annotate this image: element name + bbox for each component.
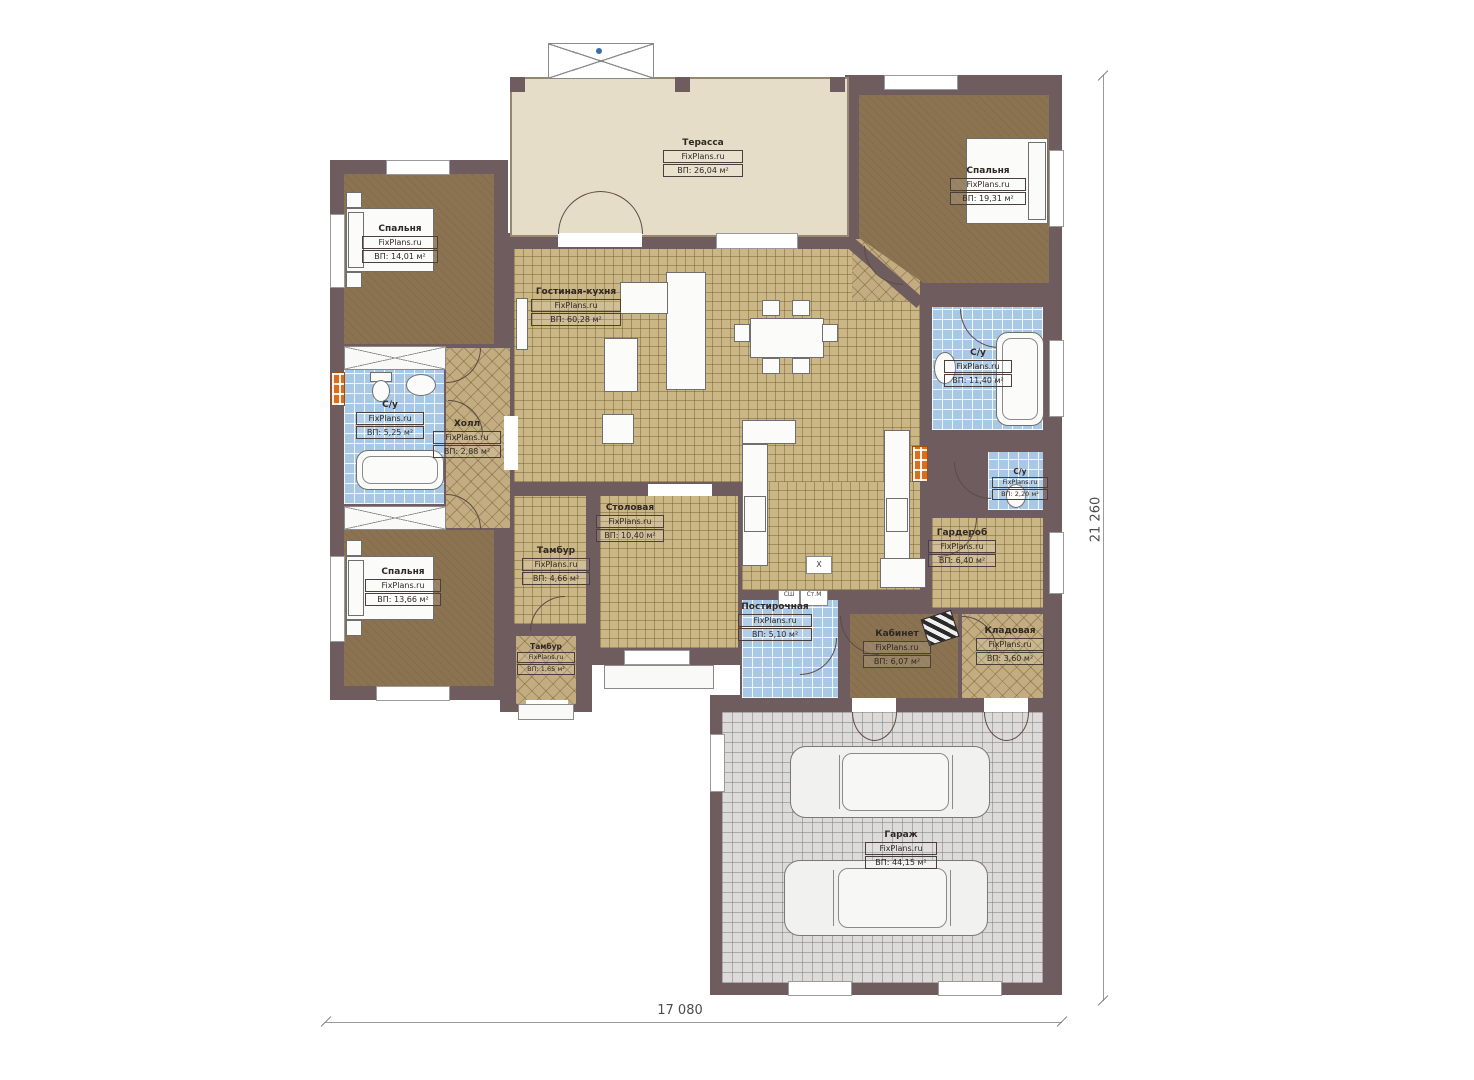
nightstand xyxy=(346,540,362,556)
car-windshield xyxy=(833,870,834,926)
coffee-table xyxy=(604,338,638,392)
sofa xyxy=(666,272,706,390)
dryer-label: СШ xyxy=(778,590,800,606)
window xyxy=(938,981,1002,996)
bed-pillow xyxy=(348,560,364,616)
north-marker-icon xyxy=(596,48,602,54)
terrace-column xyxy=(830,77,845,92)
porch-dining xyxy=(604,665,714,689)
terrace-door-opening xyxy=(558,233,642,247)
dining-floor xyxy=(600,496,738,648)
chair xyxy=(792,300,810,316)
terrace-column xyxy=(675,77,690,92)
chair xyxy=(734,324,750,342)
car xyxy=(790,746,990,818)
chair xyxy=(762,300,780,316)
tv-stand xyxy=(516,298,528,350)
tambur-small-floor xyxy=(516,636,576,704)
bathtub xyxy=(996,332,1044,426)
hall-living-opening xyxy=(504,416,518,470)
terrace-floor xyxy=(510,77,849,237)
floor-plan-canvas: СШ Ст.М X Терасса FixPlans.ru ВП: 26,04 … xyxy=(0,0,1474,1080)
window xyxy=(1049,340,1064,417)
closet-bottom xyxy=(344,506,446,530)
bed-pillow xyxy=(1028,142,1046,220)
car-windshield xyxy=(950,870,951,926)
bathtub-inner xyxy=(362,456,438,484)
window xyxy=(716,233,798,249)
car xyxy=(784,860,988,936)
window xyxy=(330,556,345,642)
bed-pillow xyxy=(348,212,364,268)
nightstand xyxy=(346,620,362,636)
bathtub xyxy=(356,450,444,490)
car-cabin xyxy=(838,868,947,929)
dimension-line-bottom xyxy=(325,1022,1062,1023)
chair xyxy=(762,358,780,374)
window xyxy=(884,75,958,90)
car-cabin xyxy=(842,753,949,810)
window xyxy=(788,981,852,996)
washer-label: Ст.М xyxy=(800,590,828,606)
window xyxy=(376,686,450,701)
kitchen-sink xyxy=(744,496,766,532)
bathtub-inner xyxy=(1002,338,1038,420)
nightstand xyxy=(346,272,362,288)
window xyxy=(1049,532,1064,594)
fridge xyxy=(880,558,926,588)
chair xyxy=(822,324,838,342)
radiator-icon xyxy=(912,446,928,482)
garage-door-opening xyxy=(852,698,896,712)
car-windshield xyxy=(839,755,840,808)
stove xyxy=(886,498,908,532)
boiler-label: X xyxy=(806,556,832,574)
garage-door-opening xyxy=(984,698,1028,712)
car-windshield xyxy=(952,755,953,808)
nightstand xyxy=(346,192,362,208)
sink xyxy=(934,352,956,384)
dimension-width-label: 17 080 xyxy=(620,1003,740,1018)
side-table xyxy=(602,414,634,444)
toilet xyxy=(372,380,390,402)
window xyxy=(386,160,450,175)
dimension-height-label: 21 260 xyxy=(1089,480,1104,560)
window xyxy=(1049,150,1064,227)
terrace-column xyxy=(510,77,525,92)
living-dining-opening xyxy=(648,484,712,496)
porch-entrance xyxy=(518,704,574,720)
sink xyxy=(406,374,436,396)
chair xyxy=(792,358,810,374)
window xyxy=(624,650,690,665)
dining-table xyxy=(750,318,824,358)
toilet xyxy=(1006,484,1026,508)
kitchen-counter xyxy=(742,420,796,444)
window xyxy=(710,734,725,792)
closet-top xyxy=(344,346,446,370)
window xyxy=(330,214,345,288)
sofa xyxy=(620,282,668,314)
radiator-icon xyxy=(331,372,345,406)
kitchen-counter xyxy=(884,430,910,560)
